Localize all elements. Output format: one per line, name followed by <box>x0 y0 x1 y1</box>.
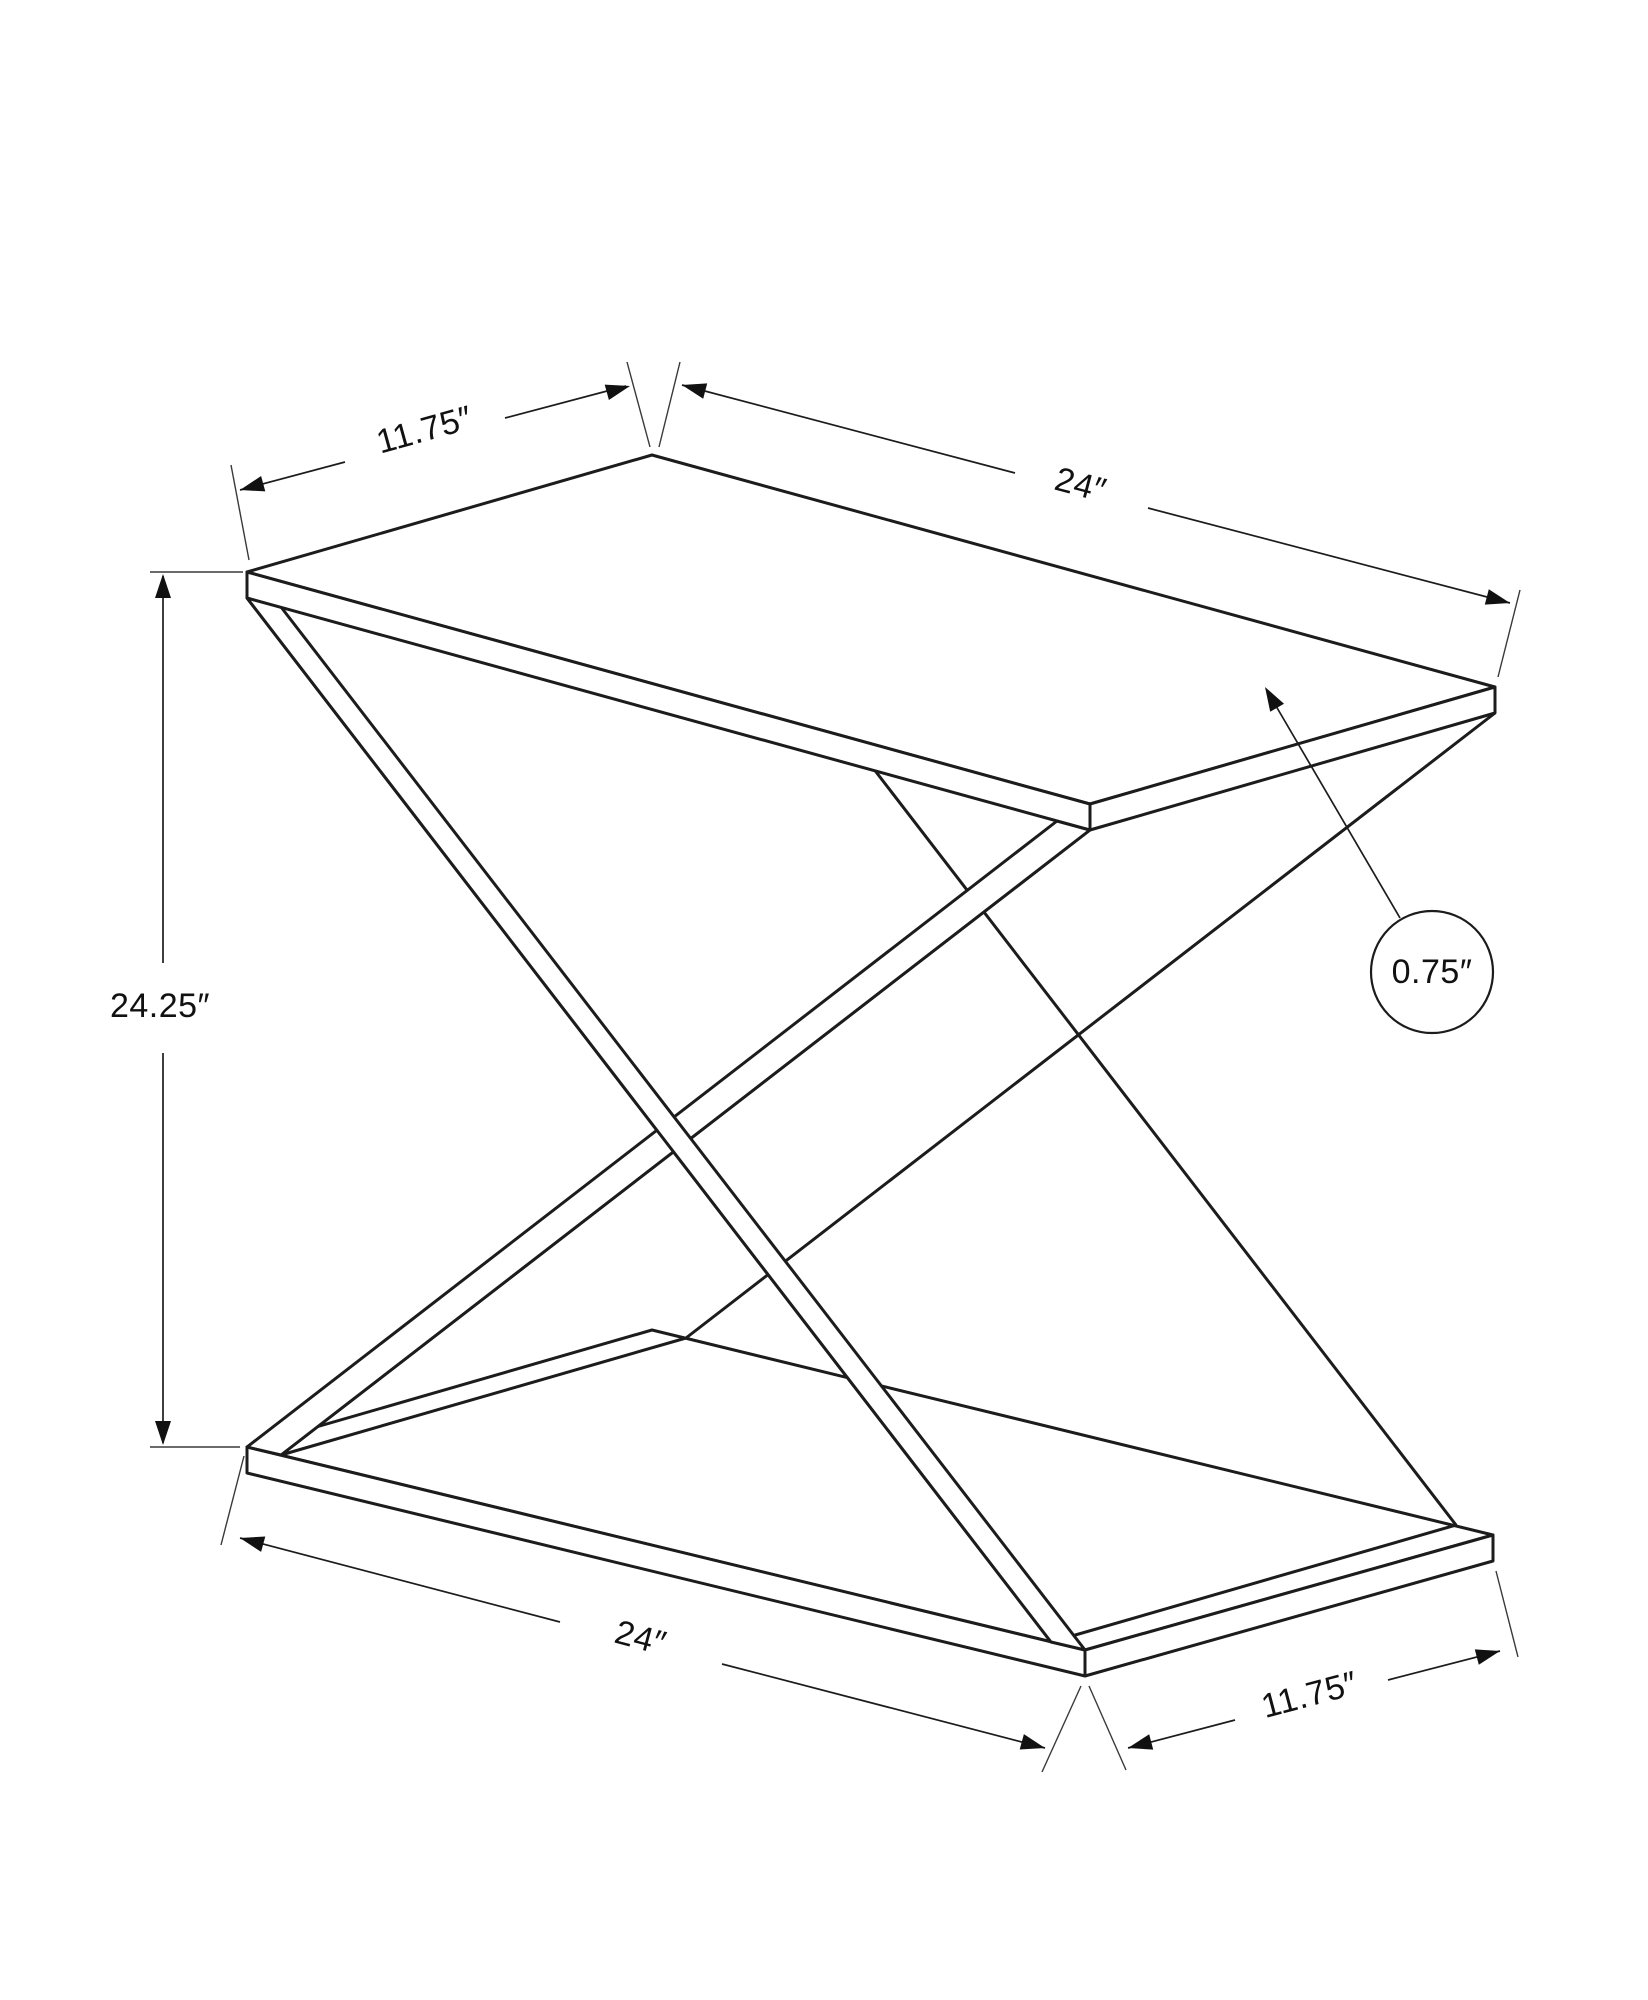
arrowhead-icon <box>240 476 265 491</box>
extension-line <box>1042 1686 1081 1772</box>
arrowhead-icon <box>1128 1734 1153 1749</box>
dim-base-depth-label: 11.75″ <box>1257 1664 1361 1726</box>
dim-height-label: 24.25″ <box>110 987 210 1025</box>
dim-thickness-label: 0.75″ <box>1392 953 1473 991</box>
extension-line <box>659 362 680 447</box>
dim-top-width-label: 24″ <box>1051 460 1110 510</box>
dimension-line <box>722 1664 1045 1748</box>
dimension-line <box>682 385 1015 473</box>
dimension-diagram: 11.75″ 24″ 24.25″ 24″ 11 <box>0 0 1648 2000</box>
arrowhead-icon <box>1485 589 1510 604</box>
arrowhead-icon <box>605 385 630 400</box>
extension-line <box>221 1456 244 1545</box>
extension-line <box>627 362 650 447</box>
dimension-line <box>240 1538 560 1622</box>
arrowhead-icon <box>155 574 171 598</box>
arrowhead-icon <box>1475 1649 1500 1664</box>
arrowhead-icon <box>240 1537 265 1552</box>
dim-top-depth-label: 11.75″ <box>372 399 476 462</box>
dim-height: 24.25″ <box>110 572 243 1447</box>
top-slab <box>247 455 1495 830</box>
table-drawing: 11.75″ 24″ 24.25″ 24″ 11 <box>0 0 1648 2000</box>
dimension-line <box>1148 508 1510 603</box>
extension-line <box>231 465 249 560</box>
arrowhead-icon <box>1020 1734 1045 1749</box>
arrowhead-icon <box>155 1421 171 1445</box>
arrowhead-icon <box>682 383 707 398</box>
dim-base-width-label: 24″ <box>611 1613 670 1663</box>
extension-line <box>1496 1571 1518 1657</box>
extension-line <box>1089 1686 1126 1770</box>
leg-left-top-surface-edges <box>281 713 1495 1455</box>
